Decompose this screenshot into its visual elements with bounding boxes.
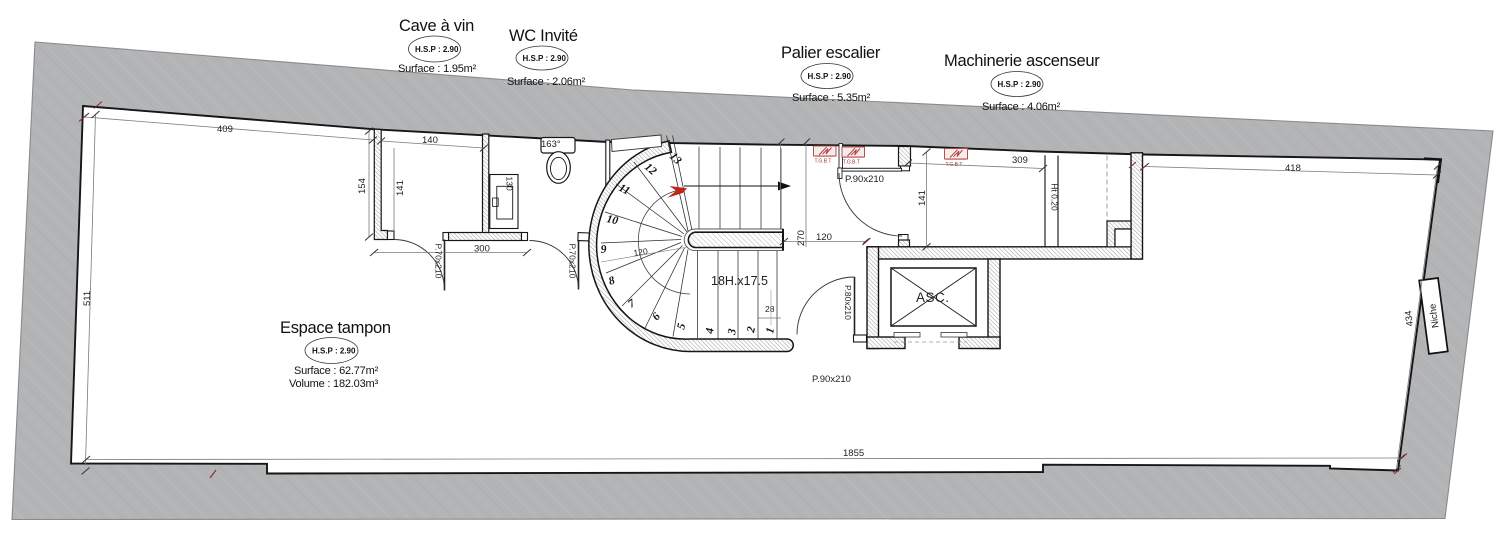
svg-text:P.90x210: P.90x210 (812, 374, 851, 385)
svg-text:ASC.: ASC. (916, 290, 950, 305)
svg-text:434: 434 (1403, 310, 1416, 327)
svg-text:130: 130 (505, 177, 515, 191)
svg-text:Surface : 62.77m²: Surface : 62.77m² (294, 365, 379, 377)
svg-text:141: 141 (917, 190, 928, 206)
svg-text:Espace tampon: Espace tampon (280, 319, 391, 337)
svg-text:1855: 1855 (843, 448, 864, 459)
svg-text:Palier escalier: Palier escalier (781, 44, 881, 62)
svg-text:163°: 163° (541, 139, 561, 150)
svg-text:WC Invité: WC Invité (509, 27, 578, 45)
svg-text:H.S.P : 2.90: H.S.P : 2.90 (415, 45, 459, 54)
svg-text:309: 309 (1012, 155, 1028, 166)
svg-text:P.90x210: P.90x210 (845, 174, 884, 185)
svg-text:409: 409 (217, 124, 233, 135)
svg-text:270: 270 (796, 230, 807, 246)
svg-text:P.70x210: P.70x210 (434, 244, 444, 279)
svg-text:T.G.B.T: T.G.B.T (843, 160, 860, 166)
svg-text:18H.x17.5: 18H.x17.5 (711, 274, 768, 288)
svg-text:H.S.P : 2.90: H.S.P : 2.90 (523, 54, 567, 63)
svg-text:28: 28 (765, 304, 775, 314)
svg-text:H.S.P : 2.90: H.S.P : 2.90 (998, 80, 1042, 89)
svg-text:Surface : 1.95m²: Surface : 1.95m² (398, 63, 477, 75)
svg-text:Surface : 2.06m²: Surface : 2.06m² (507, 76, 586, 88)
svg-text:Surface : 4.06m²: Surface : 4.06m² (982, 101, 1061, 113)
svg-text:H.S.P : 2.90: H.S.P : 2.90 (312, 347, 356, 356)
svg-text:H.S.P : 2.90: H.S.P : 2.90 (808, 72, 852, 81)
svg-text:140: 140 (422, 135, 438, 146)
svg-text:Cave à vin: Cave à vin (399, 17, 474, 35)
svg-text:T.G.B.T: T.G.B.T (815, 159, 832, 165)
svg-text:Ht 0.20: Ht 0.20 (1050, 183, 1060, 211)
svg-text:418: 418 (1285, 163, 1301, 174)
svg-text:511: 511 (82, 291, 93, 306)
svg-text:141: 141 (395, 180, 406, 196)
svg-text:Volume : 182.03m³: Volume : 182.03m³ (289, 378, 378, 390)
svg-text:154: 154 (357, 178, 368, 194)
svg-text:Machinerie ascenseur: Machinerie ascenseur (944, 52, 1100, 70)
svg-text:P.70x210: P.70x210 (568, 244, 578, 279)
svg-text:P.80x210: P.80x210 (843, 285, 853, 320)
svg-text:9: 9 (600, 244, 607, 256)
svg-text:300: 300 (474, 244, 490, 255)
svg-text:120: 120 (816, 232, 832, 243)
svg-text:Surface : 5.35m²: Surface : 5.35m² (792, 92, 871, 104)
